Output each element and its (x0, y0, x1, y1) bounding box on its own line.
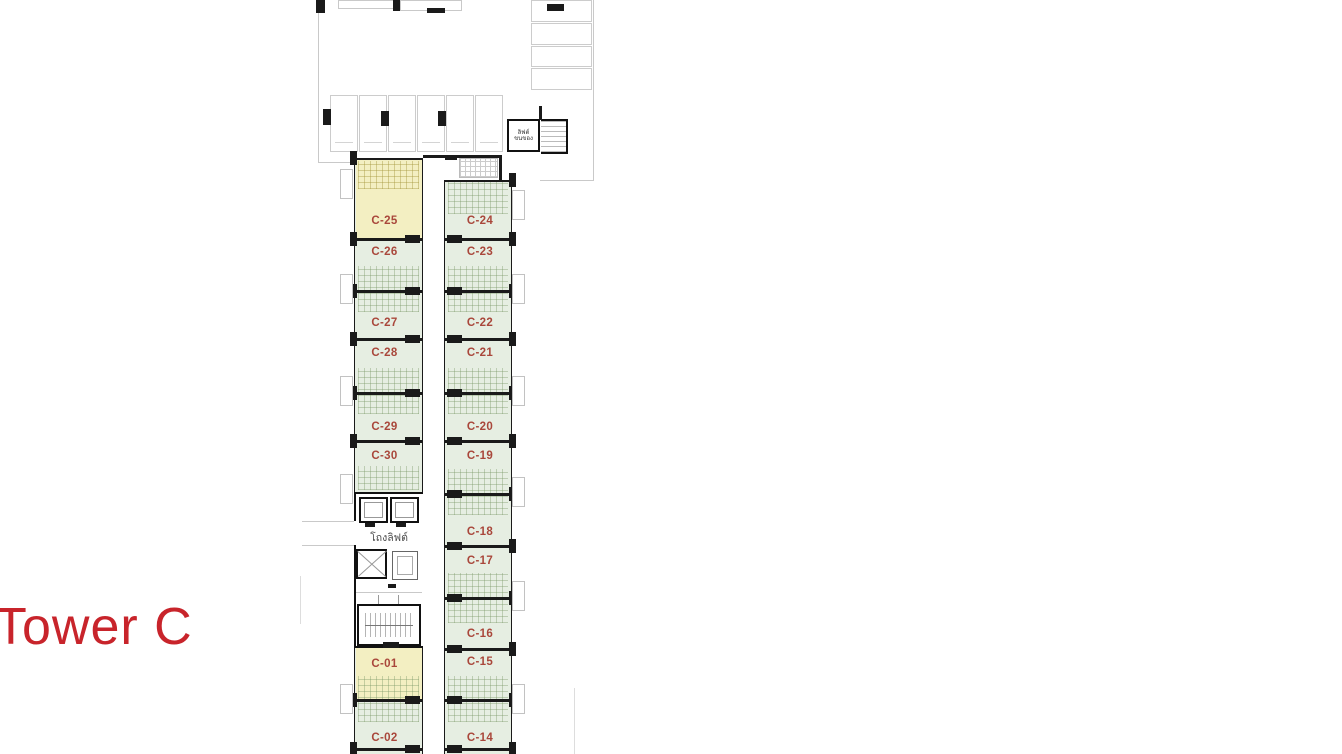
ac-ledge (512, 376, 525, 406)
door-marker (447, 335, 462, 343)
core-door-gap (352, 521, 357, 545)
column-marker (438, 111, 446, 126)
door-marker (447, 437, 462, 445)
stall-foot-line (364, 142, 382, 143)
door-marker (365, 523, 375, 527)
column-marker (509, 539, 516, 553)
door-marker (447, 287, 462, 295)
door-marker (447, 389, 462, 397)
bridge-line (302, 545, 354, 546)
ac-ledge (512, 274, 525, 304)
parking-stall (446, 95, 474, 152)
column-marker (316, 0, 325, 13)
ac-ledge (340, 474, 353, 504)
shaft-side-room (392, 551, 418, 580)
ac-ledge (512, 581, 525, 611)
parking-stall (531, 46, 592, 68)
unit-label-C-17: C-17 (450, 555, 510, 568)
column-marker (323, 109, 331, 125)
elevator-shaft (359, 497, 388, 523)
parking-stall-column (531, 0, 593, 91)
utility-room (459, 158, 498, 178)
bath-zone (448, 182, 508, 214)
elevator-shaft (390, 497, 419, 523)
unit-label-C-20: C-20 (450, 421, 510, 434)
door-marker (447, 696, 462, 704)
column-marker (350, 151, 357, 165)
unit-label-C-15: C-15 (450, 656, 510, 669)
service-lift-label-line2: ขนของ (514, 136, 533, 142)
door-marker (405, 437, 420, 445)
door-marker (405, 696, 420, 704)
site-edge-line (574, 688, 575, 754)
door-marker (388, 584, 396, 588)
column-marker (509, 434, 516, 448)
column-marker (381, 111, 389, 126)
podium-top-room (338, 0, 398, 9)
door-marker (405, 287, 420, 295)
core-partition-line (356, 592, 422, 593)
ac-ledge (340, 274, 353, 304)
core-stairwell (357, 604, 421, 646)
stall-foot-line (335, 142, 353, 143)
door-marker (447, 542, 462, 550)
door-marker (396, 523, 406, 527)
door-marker (445, 155, 457, 160)
ac-ledge (340, 376, 353, 406)
bath-zone (358, 161, 419, 189)
unit-label-C-23: C-23 (450, 246, 510, 259)
column-marker (509, 173, 516, 187)
door-marker (447, 745, 462, 753)
column-marker (509, 232, 516, 246)
unit-label-C-16: C-16 (450, 628, 510, 641)
ac-ledge (512, 684, 525, 714)
door-marker (427, 8, 445, 13)
unit-label-C-26: C-26 (355, 246, 415, 259)
elevator-hall-label: โถงลิฟต์ (356, 529, 422, 546)
podium-left-wall-line (318, 0, 319, 163)
unit-label-C-19: C-19 (450, 450, 510, 463)
column-marker (350, 434, 357, 448)
column-marker (509, 642, 516, 656)
column-marker (350, 332, 357, 346)
stall-foot-line (393, 142, 411, 143)
bridge-line (302, 521, 354, 522)
parking-stall (388, 95, 416, 152)
door-marker (447, 235, 462, 243)
slab-top-wall (499, 155, 502, 181)
parking-stall (330, 95, 358, 152)
door-marker (405, 389, 420, 397)
unit-label-C-02: C-02 (355, 732, 415, 745)
podium-right-return-line (540, 180, 594, 181)
stall-foot-line (480, 142, 498, 143)
unit-label-C-30: C-30 (355, 450, 415, 463)
unit-label-C-22: C-22 (450, 317, 510, 330)
column-marker (509, 332, 516, 346)
door-marker (405, 335, 420, 343)
unit-label-C-18: C-18 (450, 526, 510, 539)
bath-zone (358, 466, 419, 490)
stall-foot-line (451, 142, 469, 143)
ac-ledge (340, 684, 353, 714)
unit-label-C-01: C-01 (355, 658, 415, 671)
parking-stall-row (330, 95, 504, 153)
parking-stall (531, 23, 592, 45)
wall-stub (539, 106, 542, 120)
parking-stall (475, 95, 503, 152)
stall-foot-line (422, 142, 440, 143)
unit-label-C-21: C-21 (450, 347, 510, 360)
service-stair (541, 119, 568, 154)
column-marker (350, 232, 357, 246)
ac-ledge (512, 477, 525, 507)
door-marker (447, 645, 462, 653)
podium-right-wall-line (593, 0, 594, 181)
site-edge-line (300, 576, 301, 624)
unit-label-C-14: C-14 (450, 732, 510, 745)
stair-mid-rail (365, 625, 413, 626)
unit-label-C-25: C-25 (355, 215, 415, 228)
column-marker (509, 742, 516, 754)
door-marker (447, 490, 462, 498)
column-marker (547, 4, 564, 11)
service-lift-room: ลิฟต์ ขนของ (507, 119, 540, 152)
unit-label-C-27: C-27 (355, 317, 415, 330)
column-marker (393, 0, 400, 11)
podium-connect-line (318, 162, 354, 163)
parking-stall (531, 68, 592, 90)
unit-label-C-24: C-24 (450, 215, 510, 228)
door-marker (447, 594, 462, 602)
elevator-shaft-x (356, 549, 387, 579)
floor-plan-canvas: ลิฟต์ ขนของ C-25C-26C-27C-28C-29C-30C-01… (0, 0, 1342, 754)
door-marker (383, 642, 399, 648)
unit-label-C-28: C-28 (355, 347, 415, 360)
ac-ledge (340, 169, 353, 199)
tower-title: Tower C (0, 597, 193, 657)
door-marker (405, 235, 420, 243)
ac-ledge (512, 190, 525, 220)
unit-label-C-29: C-29 (355, 421, 415, 434)
door-marker (405, 745, 420, 753)
